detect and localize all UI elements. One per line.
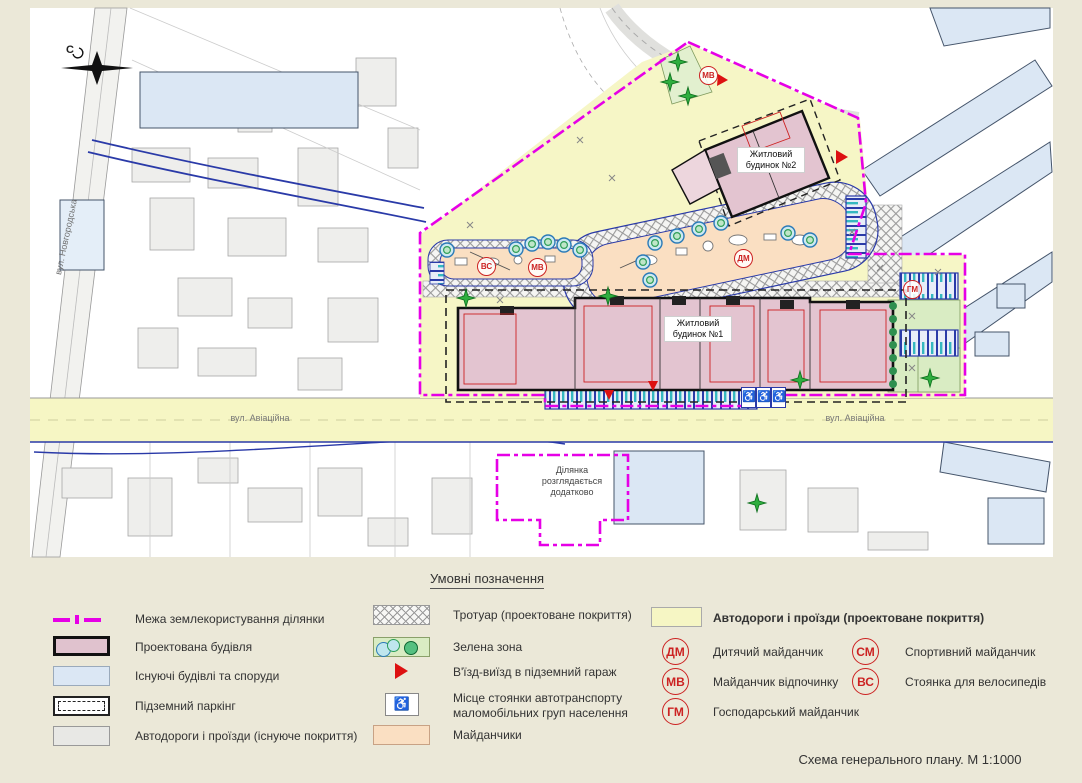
green-zone-swatch — [373, 637, 430, 657]
legend-label: Існуючі будівлі та споруди — [135, 669, 279, 683]
map-badge-playground-children: ДМ — [734, 249, 753, 268]
street-label-aviatsiina-east: вул. Авіаційна — [800, 413, 910, 423]
map-badge-rest-area: МВ — [528, 258, 547, 277]
wheelchair-spot-icon: ♿ — [756, 387, 771, 408]
building-1 — [446, 290, 906, 402]
underground-parking-swatch — [53, 696, 110, 716]
legend-label: Підземний паркінг — [135, 699, 236, 713]
legend-label: В'їзд-виїзд в підземний гараж — [453, 665, 617, 679]
existing-building-swatch — [53, 666, 110, 686]
existing-road-swatch — [53, 726, 110, 746]
proposed-building-swatch — [53, 636, 110, 656]
street-label-aviatsiina-west: вул. Авіаційна — [205, 413, 315, 423]
legend-badge-sm: СМ — [852, 638, 879, 665]
legend-badge-mv: МВ — [662, 668, 689, 695]
legend-label: Проектована будівля — [135, 640, 252, 654]
building-2-label: Житловий будинок №2 — [737, 147, 805, 173]
map-badge-household: ГМ — [903, 280, 922, 299]
legend-badge-gm: ГМ — [662, 698, 689, 725]
drawing-title: Схема генерального плану. М 1:1000 — [745, 752, 1075, 767]
map-badge-bicycle: ВС — [477, 257, 496, 276]
legend-label-proposed-road: Автодороги і проїзди (проектоване покрит… — [713, 611, 984, 625]
legend-label: Автодороги і проїзди (існуюче покриття) — [135, 729, 357, 743]
boundary-line-swatch — [53, 615, 110, 624]
building-1-label: Житловий будинок №1 — [664, 316, 732, 342]
general-plan-sheet: С вул. Новгородська вул. Авіаційна вул. … — [0, 0, 1082, 783]
map-badge-rest-area-north: МВ — [699, 66, 718, 85]
legend-label: Спортивний майданчик — [905, 645, 1035, 659]
legend-title: Умовні позначення — [430, 571, 544, 589]
legend-label: Межа землекористування ділянки — [135, 612, 325, 626]
wheelchair-parking-icon: ♿ — [385, 693, 419, 716]
legend-label: Дитячий майданчик — [713, 645, 823, 659]
sidewalk-swatch — [373, 605, 430, 625]
wheelchair-spot-icon: ♿ — [741, 387, 756, 408]
proposed-road-swatch — [651, 607, 702, 627]
compass-north-letter: С — [66, 44, 74, 56]
legend-label: Стоянка для велосипедів — [905, 675, 1046, 689]
legend-badge-dm: ДМ — [662, 638, 689, 665]
legend-label: Майданчики — [453, 728, 522, 742]
playground-swatch — [373, 725, 430, 745]
additional-area-note: Ділянка розглядається додатково — [531, 465, 613, 498]
wheelchair-spot-icon: ♿ — [771, 387, 786, 408]
legend-label: Господарський майданчик — [713, 705, 859, 719]
legend-badge-vs: ВС — [852, 668, 879, 695]
legend-label: Тротуар (проектоване покриття) — [453, 608, 632, 622]
legend-label: Місце стоянки автотранспорту маломобільн… — [453, 691, 668, 721]
garage-entry-icon — [395, 663, 408, 679]
legend-label: Зелена зона — [453, 640, 522, 654]
legend-label: Майданчик відпочинку — [713, 675, 838, 689]
